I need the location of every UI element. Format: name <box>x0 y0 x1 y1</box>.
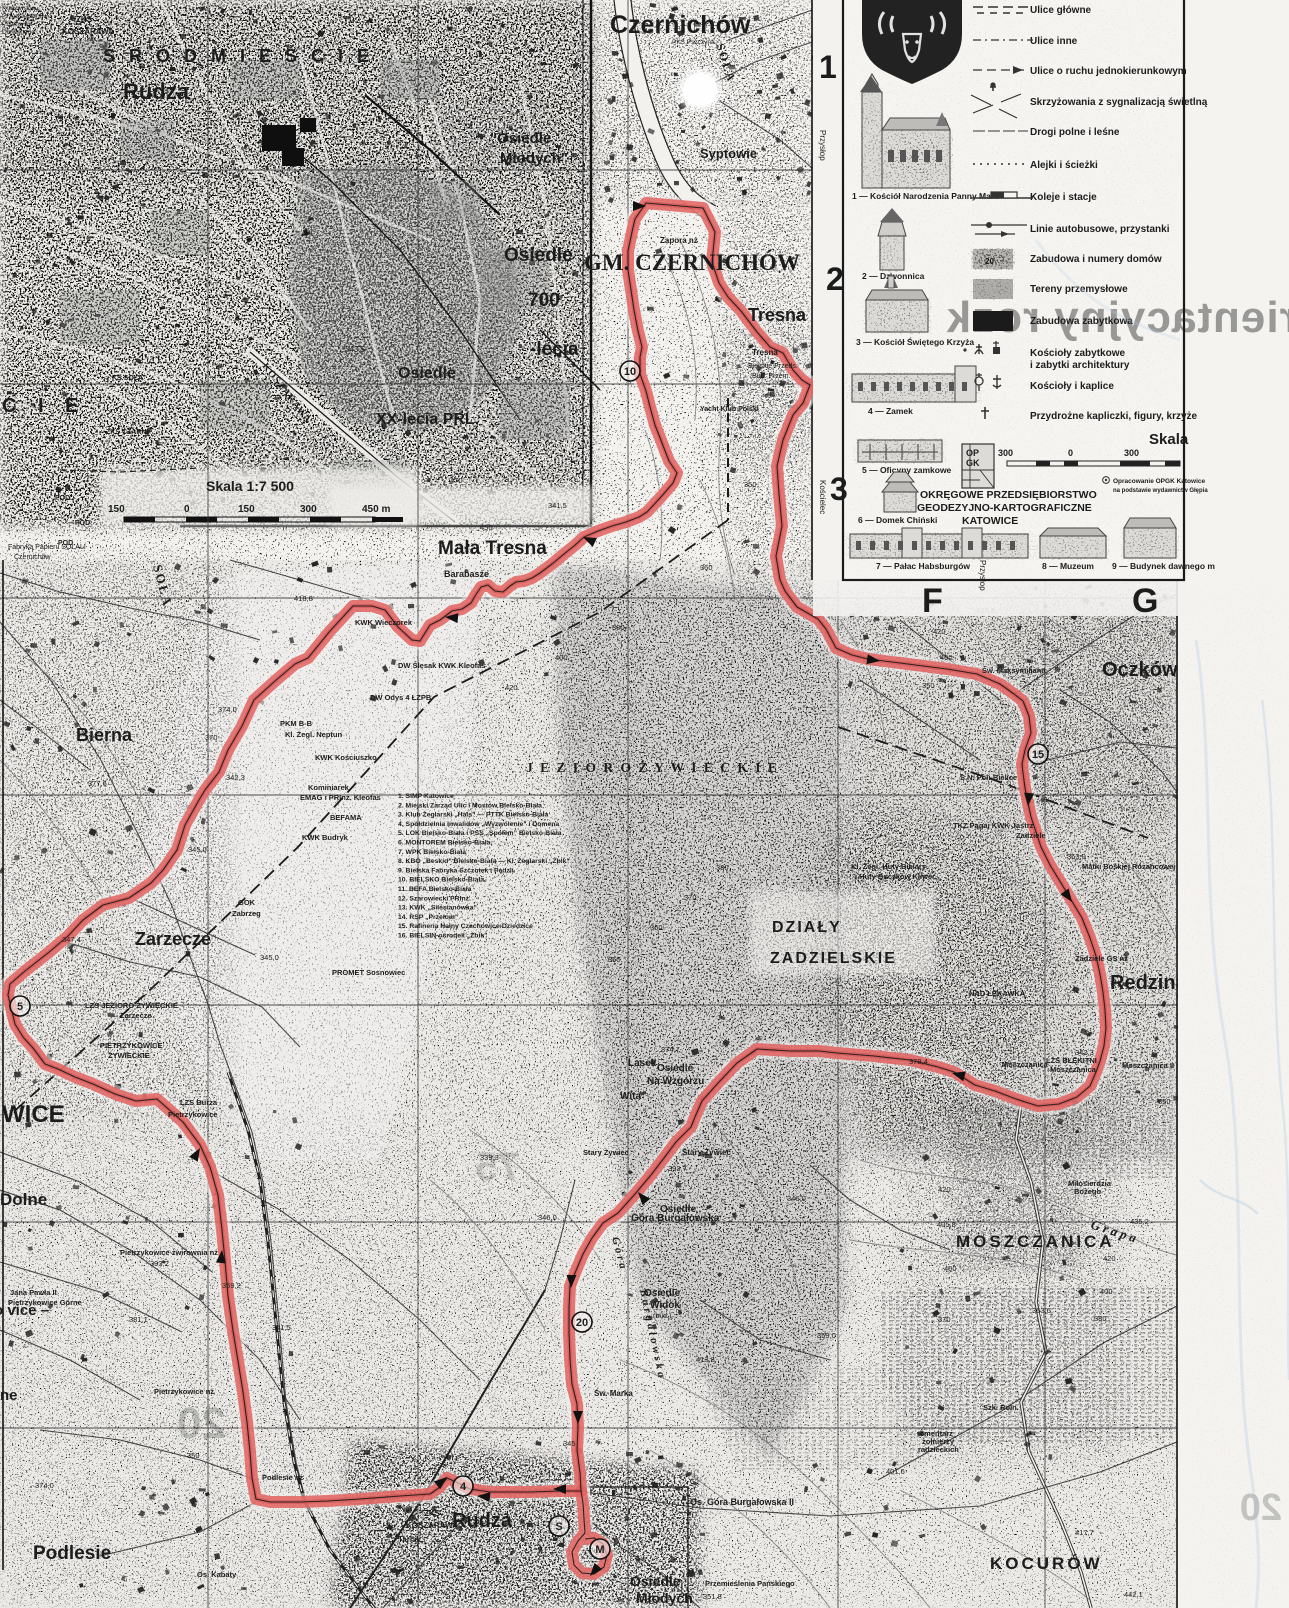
svg-text:KS SOŁA: KS SOŁA <box>112 375 143 382</box>
svg-text:DW Odys 4 ŁZPB: DW Odys 4 ŁZPB <box>370 693 432 702</box>
svg-text:LZS JEZIORO ŻYWIECKIE: LZS JEZIORO ŻYWIECKIE <box>85 1001 178 1010</box>
svg-text:Osiedle: Osiedle <box>398 365 456 382</box>
svg-text:Orientacyjny rozk: Orientacyjny rozk <box>946 293 1289 342</box>
svg-text:DW Ślęsak KWK Kleofas: DW Ślęsak KWK Kleofas <box>398 661 486 670</box>
svg-text:420: 420 <box>938 1185 951 1194</box>
svg-text:442,1: 442,1 <box>1124 1590 1143 1599</box>
svg-text:Ulice główne: Ulice główne <box>1030 5 1092 16</box>
svg-text:380: 380 <box>612 623 625 632</box>
svg-text:Moszczanica: Moszczanica <box>1002 1060 1049 1069</box>
svg-text:400: 400 <box>1100 1287 1113 1296</box>
svg-text:374,0: 374,0 <box>218 705 237 714</box>
svg-text:Tresna: Tresna <box>748 305 807 325</box>
svg-text:Bielskie Przeds.: Bielskie Przeds. <box>748 363 798 370</box>
svg-text:341,5: 341,5 <box>272 1323 291 1332</box>
svg-text:350: 350 <box>744 480 757 489</box>
svg-text:Zarzecze: Zarzecze <box>135 929 211 949</box>
svg-text:347,4: 347,4 <box>62 935 81 944</box>
svg-text:0: 0 <box>184 504 190 515</box>
svg-text:13. KWK „Silesianówka”: 13. KWK „Silesianówka” <box>398 905 477 912</box>
svg-text:KOSZARAWA: KOSZARAWA <box>62 27 114 36</box>
svg-text:Zadziele GS nż: Zadziele GS nż <box>1075 954 1128 963</box>
svg-text:350: 350 <box>1158 1097 1171 1106</box>
svg-text:15: 15 <box>1032 749 1044 761</box>
svg-text:Młodych: Młodych <box>636 1590 693 1606</box>
svg-text:Pietrzykowice nż: Pietrzykowice nż <box>154 1387 214 1396</box>
svg-text:Czernichów: Czernichów <box>14 554 52 561</box>
svg-text:Syptowie: Syptowie <box>700 146 757 161</box>
svg-text:300: 300 <box>300 504 317 515</box>
svg-text:ZKS: ZKS <box>424 1509 441 1518</box>
svg-text:4. Spółdzielnia Inwalidów „Wyz: 4. Spółdzielnia Inwalidów „Wyzwolenie” i… <box>398 821 559 828</box>
svg-text:9 — Budynek dawnego m: 9 — Budynek dawnego m <box>1112 561 1215 571</box>
svg-text:381,1: 381,1 <box>129 1315 148 1324</box>
svg-text:374,0: 374,0 <box>35 1481 54 1490</box>
svg-text:Tarlak: Tarlak <box>398 1535 422 1544</box>
svg-text:370: 370 <box>205 733 218 742</box>
svg-text:Szk. Roln.: Szk. Roln. <box>983 1403 1019 1412</box>
svg-text:Przydrożne kapliczki, figury,: Przydrożne kapliczki, figury, krzyże <box>1030 411 1198 422</box>
svg-text:Przemieślenia Pańskiego: Przemieślenia Pańskiego <box>705 1579 795 1588</box>
svg-text:Os. Kabaty: Os. Kabaty <box>197 1570 237 1579</box>
svg-text:OKRĘGOWE PRZEDSIĘBIORSTWO: OKRĘGOWE PRZEDSIĘBIORSTWO <box>920 489 1097 501</box>
svg-text:POD: POD <box>55 495 70 502</box>
svg-text:8. KBO „Beskid” Bielsko-Biała: 8. KBO „Beskid” Bielsko-Biała — Kl. Żegl… <box>398 857 570 865</box>
svg-text:343,5: 343,5 <box>345 345 366 354</box>
svg-text:1. SIMP Katowice: 1. SIMP Katowice <box>398 793 454 800</box>
svg-text:Na Wzgórzu: Na Wzgórzu <box>647 1076 704 1087</box>
svg-text:S.N. Poli-Bielice: S.N. Poli-Bielice <box>960 773 1017 782</box>
svg-text:Kl. Żegl. Neptun: Kl. Żegl. Neptun <box>285 730 343 739</box>
svg-text:7 — Pałac Habsburgów: 7 — Pałac Habsburgów <box>876 561 970 571</box>
svg-text:9. Bielska Fabryka Szczotek i: 9. Bielska Fabryka Szczotek i Pędzli <box>398 867 514 874</box>
svg-text:Bożego: Bożego <box>1074 1187 1102 1196</box>
svg-text:393,2: 393,2 <box>150 1259 169 1268</box>
svg-text:Przysłop: Przysłop <box>978 560 987 591</box>
svg-text:16. BIELSIN-ośrodek „Żbik”: 16. BIELSIN-ośrodek „Żbik” <box>398 932 488 940</box>
svg-text:20: 20 <box>1240 1487 1282 1529</box>
svg-text:Podlesie nż: Podlesie nż <box>262 1473 304 1482</box>
svg-text:150: 150 <box>108 504 125 515</box>
svg-text:Kościoły zabytkowe: Kościoły zabytkowe <box>1030 348 1125 359</box>
svg-text:Młodych": Młodych" <box>500 150 568 167</box>
svg-text:KOSZARAWA: KOSZARAWA <box>406 1521 458 1530</box>
svg-text:Osiedle: Osiedle <box>657 1063 694 1074</box>
svg-text:Osiedle: Osiedle <box>504 245 573 266</box>
svg-text:i Huty Buczków Kliwer: i Huty Buczków Kliwer <box>855 872 935 881</box>
svg-text:351,8: 351,8 <box>703 1592 722 1601</box>
svg-text:Ulice inne: Ulice inne <box>1030 36 1078 47</box>
svg-text:370: 370 <box>684 893 697 902</box>
svg-text:Zarzecze: Zarzecze <box>120 1011 152 1020</box>
svg-text:MOSZCZANICA: MOSZCZANICA <box>956 1232 1115 1251</box>
svg-text:360: 360 <box>700 563 713 572</box>
svg-text:350: 350 <box>608 955 621 964</box>
svg-text:OP: OP <box>966 448 979 458</box>
svg-text:417,7: 417,7 <box>1075 1528 1094 1537</box>
svg-text:400: 400 <box>944 1264 957 1273</box>
svg-text:Pietrzykowice: Pietrzykowice <box>168 1110 218 1119</box>
svg-text:5: 5 <box>17 1001 23 1013</box>
svg-text:300: 300 <box>998 448 1013 458</box>
svg-text:Osiedle: Osiedle <box>630 1573 681 1589</box>
svg-text:ŻYWIECKIE: ŻYWIECKIE <box>108 1051 150 1060</box>
svg-text:450 m: 450 m <box>362 504 390 515</box>
svg-text:Zapora nż: Zapora nż <box>660 236 698 245</box>
svg-text:Opracowanie OPGK Katowice: Opracowanie OPGK Katowice <box>1113 478 1205 485</box>
svg-text:393,7: 393,7 <box>668 1164 687 1173</box>
svg-text:15. Rafineria Halny Czechowice: 15. Rafineria Halny Czechowice-Dziedzice <box>398 923 533 930</box>
svg-text:Barabasze: Barabasze <box>444 569 489 579</box>
svg-text:363,0: 363,0 <box>1067 852 1086 861</box>
svg-text:Moszczanica II nż: Moszczanica II nż <box>1122 1061 1185 1070</box>
svg-text:359,0: 359,0 <box>817 1331 836 1340</box>
svg-text:341,5: 341,5 <box>548 501 567 510</box>
svg-text:XX-lecia PRL.: XX-lecia PRL. <box>376 411 479 428</box>
svg-text:KWK Kościuszko: KWK Kościuszko <box>315 753 377 762</box>
svg-text:POD: POD <box>75 520 90 527</box>
svg-text:435,2: 435,2 <box>1130 1217 1149 1226</box>
svg-text:GEODEZYJNO-KARTOGRAFICZNE: GEODEZYJNO-KARTOGRAFICZNE <box>917 502 1092 514</box>
svg-text:6 — Domek Chiński: 6 — Domek Chiński <box>858 515 937 525</box>
svg-text:PIETRZYKOWICE: PIETRZYKOWICE <box>100 1041 163 1050</box>
svg-text:Ulice o ruchu jednokierunkowym: Ulice o ruchu jednokierunkowym <box>1030 66 1187 77</box>
svg-text:Bierna: Bierna <box>76 725 133 745</box>
svg-text:Przysłop: Przysłop <box>818 130 827 161</box>
svg-text:5. LOK Bielsko-Biała i PSS „Sp: 5. LOK Bielsko-Biała i PSS „Społem” Biel… <box>398 830 562 837</box>
svg-text:LZS Burza: LZS Burza <box>180 1098 218 1107</box>
svg-text:radzieckich: radzieckich <box>918 1445 959 1454</box>
svg-text:20: 20 <box>177 1399 226 1448</box>
svg-text:6. MONTOREM Bielsko-Biała: 6. MONTOREM Bielsko-Biała <box>398 840 491 847</box>
svg-text:4: 4 <box>460 1481 467 1493</box>
svg-text:ne: ne <box>0 1387 18 1404</box>
svg-text:380: 380 <box>716 863 729 872</box>
svg-text:Yacht Klub Polski: Yacht Klub Polski <box>700 406 759 413</box>
svg-text:KOCURÓW: KOCURÓW <box>990 1554 1103 1573</box>
svg-text:GOK: GOK <box>238 898 256 907</box>
svg-text:Drogi polne i leśne: Drogi polne i leśne <box>1030 127 1120 138</box>
svg-text:G: G <box>1132 582 1158 620</box>
svg-text:Góra Burgałowska: Góra Burgałowska <box>631 1213 720 1224</box>
svg-text:418,8: 418,8 <box>294 594 313 603</box>
svg-text:377,6: 377,6 <box>88 779 107 788</box>
svg-text:405,8: 405,8 <box>937 1220 956 1229</box>
svg-text:GM. CZERNICHÓW: GM. CZERNICHÓW <box>584 249 800 275</box>
svg-text:KWK Wieczorek: KWK Wieczorek <box>355 618 413 627</box>
svg-text:DZIAŁY: DZIAŁY <box>772 919 842 936</box>
svg-text:4 — Zamek: 4 — Zamek <box>868 406 913 416</box>
svg-text:8 — Muzeum: 8 — Muzeum <box>1042 561 1094 571</box>
svg-text:i zabytki architektury: i zabytki architektury <box>1030 360 1130 371</box>
svg-text:7. WPK Bielsko-Biała: 7. WPK Bielsko-Biała <box>398 849 466 856</box>
svg-text:378,4: 378,4 <box>909 1057 928 1066</box>
svg-text:F: F <box>922 582 943 620</box>
svg-text:-lecia: -lecia <box>530 339 579 360</box>
svg-text:KWK Budryk: KWK Budryk <box>302 833 349 842</box>
svg-text:Przemysłu: Przemysłu <box>2 21 33 28</box>
svg-text:na podstawie wydawnictw Głępia: na podstawie wydawnictw Głępia <box>1113 488 1208 494</box>
svg-text:342,3: 342,3 <box>226 773 245 782</box>
svg-text:Zabrzeg: Zabrzeg <box>232 909 261 918</box>
svg-text:700: 700 <box>528 290 560 311</box>
svg-text:POD: POD <box>58 540 73 547</box>
svg-text:11. BEFA Bielsko-Biała: 11. BEFA Bielsko-Biała <box>398 886 472 893</box>
svg-text:420: 420 <box>505 683 518 692</box>
svg-text:TKZ Pagaj KWK Jastrz.: TKZ Pagaj KWK Jastrz. <box>953 821 1036 830</box>
svg-text:J E Z I O R O Ż Y W I E C K: J E Z I O R O Ż Y W I E C K I E <box>526 760 779 775</box>
svg-text:Kl. Żegl. Huty Bielary: Kl. Żegl. Huty Bielary <box>851 862 927 871</box>
svg-text:420: 420 <box>1103 1254 1116 1263</box>
svg-text:1: 1 <box>819 49 837 85</box>
svg-text:Fabryka Papieru SOLALI: Fabryka Papieru SOLALI <box>8 544 86 551</box>
svg-text:Skrzyżowania z sygnalizacją św: Skrzyżowania z sygnalizacją świetlną <box>1030 97 1208 108</box>
svg-text:20: 20 <box>576 1317 588 1329</box>
svg-text:"Osiedle: "Osiedle <box>490 130 551 147</box>
svg-text:413,8: 413,8 <box>696 1355 715 1364</box>
svg-text:Krakowskie: Krakowskie <box>2 5 36 12</box>
svg-text:Matki Boskiej Różańcowej: Matki Boskiej Różańcowej <box>1082 862 1175 871</box>
svg-text:346,0: 346,0 <box>538 1213 557 1222</box>
svg-text:346,0: 346,0 <box>787 1194 806 1203</box>
svg-text:450: 450 <box>480 523 493 532</box>
svg-text:Redzina: Redzina <box>1110 972 1188 994</box>
svg-text:Św. Maksymiliana: Św. Maksymiliana <box>982 666 1046 675</box>
svg-text:Wita: Wita <box>620 1091 641 1102</box>
svg-text:150: 150 <box>238 504 255 515</box>
svg-text:Dolne: Dolne <box>0 1190 47 1209</box>
svg-text:Alejki i ścieżki: Alejki i ścieżki <box>1030 160 1098 171</box>
svg-text:470: 470 <box>450 476 463 485</box>
svg-text:14. RSP „Przełom”: 14. RSP „Przełom” <box>398 914 458 921</box>
svg-text:Kościelec: Kościelec <box>818 480 827 514</box>
svg-text:350: 350 <box>187 1451 200 1460</box>
svg-text:WICE: WICE <box>2 1101 65 1128</box>
svg-text:400: 400 <box>940 653 953 662</box>
svg-text:Św. Marka: Św. Marka <box>594 1389 633 1398</box>
svg-text:Rudza: Rudza <box>452 1510 513 1532</box>
svg-text:2. Miejski Zarząd Ulic i Mostó: 2. Miejski Zarząd Ulic i Mostów Bielsko-… <box>398 802 542 809</box>
svg-text:Os. Góra Burgałowska II: Os. Góra Burgałowska II <box>690 1497 794 1507</box>
svg-text:360: 360 <box>650 923 663 932</box>
svg-text:3. Klub Żeglarski „Hals” — PTT: 3. Klub Żeglarski „Hals” — PTTK Bielsko-… <box>398 811 549 819</box>
svg-text:363,6: 363,6 <box>1032 1306 1051 1315</box>
svg-text:Koleje i stacje: Koleje i stacje <box>1030 192 1097 203</box>
svg-text:Mała Tresna: Mała Tresna <box>438 538 547 559</box>
svg-text:Stary Żywiec: Stary Żywiec <box>682 1148 731 1157</box>
svg-text:Kominiarek: Kominiarek <box>308 783 350 792</box>
svg-text:Lasek: Lasek <box>628 1058 657 1069</box>
svg-text:Skala: Skala <box>1149 431 1189 448</box>
svg-text:Kościoły i kaplice: Kościoły i kaplice <box>1030 381 1114 392</box>
svg-text:Tresna: Tresna <box>752 348 778 357</box>
svg-text:Skala 1:7 500: Skala 1:7 500 <box>206 478 294 494</box>
svg-text:ZKS CZARNI: ZKS CZARNI <box>106 429 148 436</box>
svg-text:3: 3 <box>830 471 848 507</box>
svg-text:KATOWICE: KATOWICE <box>962 515 1018 527</box>
svg-text:Zadziele: Zadziele <box>1016 831 1046 840</box>
svg-text:Czernichów: Czernichów <box>610 11 751 39</box>
svg-text:ZADZIELSKIE: ZADZIELSKIE <box>770 950 897 967</box>
svg-text:0: 0 <box>1068 448 1073 458</box>
svg-text:EMAG i PRInż. Kleofas: EMAG i PRInż. Kleofas <box>300 793 381 802</box>
svg-text:Jana Pawła II: Jana Pawła II <box>10 1288 57 1297</box>
svg-text:S: S <box>555 1521 562 1533</box>
svg-text:345,0: 345,0 <box>260 953 279 962</box>
svg-text:GK: GK <box>966 458 980 468</box>
svg-text:NAD ŁĘKAWKĄ: NAD ŁĘKAWKĄ <box>969 989 1026 998</box>
svg-text:2: 2 <box>826 261 844 297</box>
svg-text:M: M <box>595 1544 604 1556</box>
svg-text:PROMET Sosnowiec: PROMET Sosnowiec <box>332 968 405 977</box>
svg-text:Bud. Przem.: Bud. Przem. <box>752 373 791 380</box>
svg-text:C I E: C I E <box>2 395 86 417</box>
svg-text:Linie autobusowe, przystanki: Linie autobusowe, przystanki <box>1030 224 1170 235</box>
svg-text:Oczków: Oczków <box>1102 659 1178 681</box>
svg-text:Pietrzykowice żwirownia nż: Pietrzykowice żwirownia nż <box>120 1248 218 1257</box>
svg-text:10. BIELSKO Bielsko-Biała: 10. BIELSKO Bielsko-Biała <box>398 877 484 884</box>
svg-text:Rudza: Rudza <box>123 79 190 104</box>
svg-text:Widok: Widok <box>650 1300 680 1311</box>
svg-text:345,0: 345,0 <box>188 845 207 854</box>
svg-text:BEFAMA: BEFAMA <box>330 813 362 822</box>
svg-text:342,3: 342,3 <box>1075 1048 1094 1057</box>
svg-text:300: 300 <box>1124 448 1139 458</box>
svg-text:359,2: 359,2 <box>222 1281 241 1290</box>
svg-text:20: 20 <box>985 257 994 266</box>
svg-text:345: 345 <box>563 1439 576 1448</box>
svg-text:PKM B-B: PKM B-B <box>280 719 313 728</box>
svg-text:Moszczanica: Moszczanica <box>1050 1065 1097 1074</box>
svg-text:374,7: 374,7 <box>661 1045 680 1054</box>
svg-text:380: 380 <box>1094 1314 1107 1323</box>
svg-text:420: 420 <box>933 627 946 636</box>
svg-text:400: 400 <box>555 653 568 662</box>
svg-text:10: 10 <box>624 366 636 378</box>
svg-text:350: 350 <box>922 681 935 690</box>
svg-text:401,6: 401,6 <box>886 1467 905 1476</box>
svg-text:370: 370 <box>938 1315 951 1324</box>
svg-text:Pietrzykowice Górne: Pietrzykowice Górne <box>8 1298 82 1307</box>
svg-text:PKS Pszczyna: PKS Pszczyna <box>672 39 715 46</box>
svg-text:ZKS: ZKS <box>76 15 93 24</box>
svg-text:12. Szarowiecki PRInż.: 12. Szarowiecki PRInż. <box>398 895 471 902</box>
svg-text:75: 75 <box>476 1145 521 1189</box>
svg-text:Podlesie: Podlesie <box>33 1543 111 1564</box>
svg-text:Przedsiębiorstwo: Przedsiębiorstwo <box>2 13 52 20</box>
svg-text:1 — Kościół Narodzenia Panny M: 1 — Kościół Narodzenia Panny Marii <box>852 191 999 201</box>
svg-text:Stary Żywiec: Stary Żywiec <box>583 1148 629 1157</box>
svg-text:LZS BŁĘKITNI: LZS BŁĘKITNI <box>1046 1056 1097 1065</box>
svg-text:ŚRÓDMIEŚCIE: ŚRÓDMIEŚCIE <box>103 45 383 66</box>
svg-text:Drzewnego: Drzewnego <box>2 29 35 36</box>
